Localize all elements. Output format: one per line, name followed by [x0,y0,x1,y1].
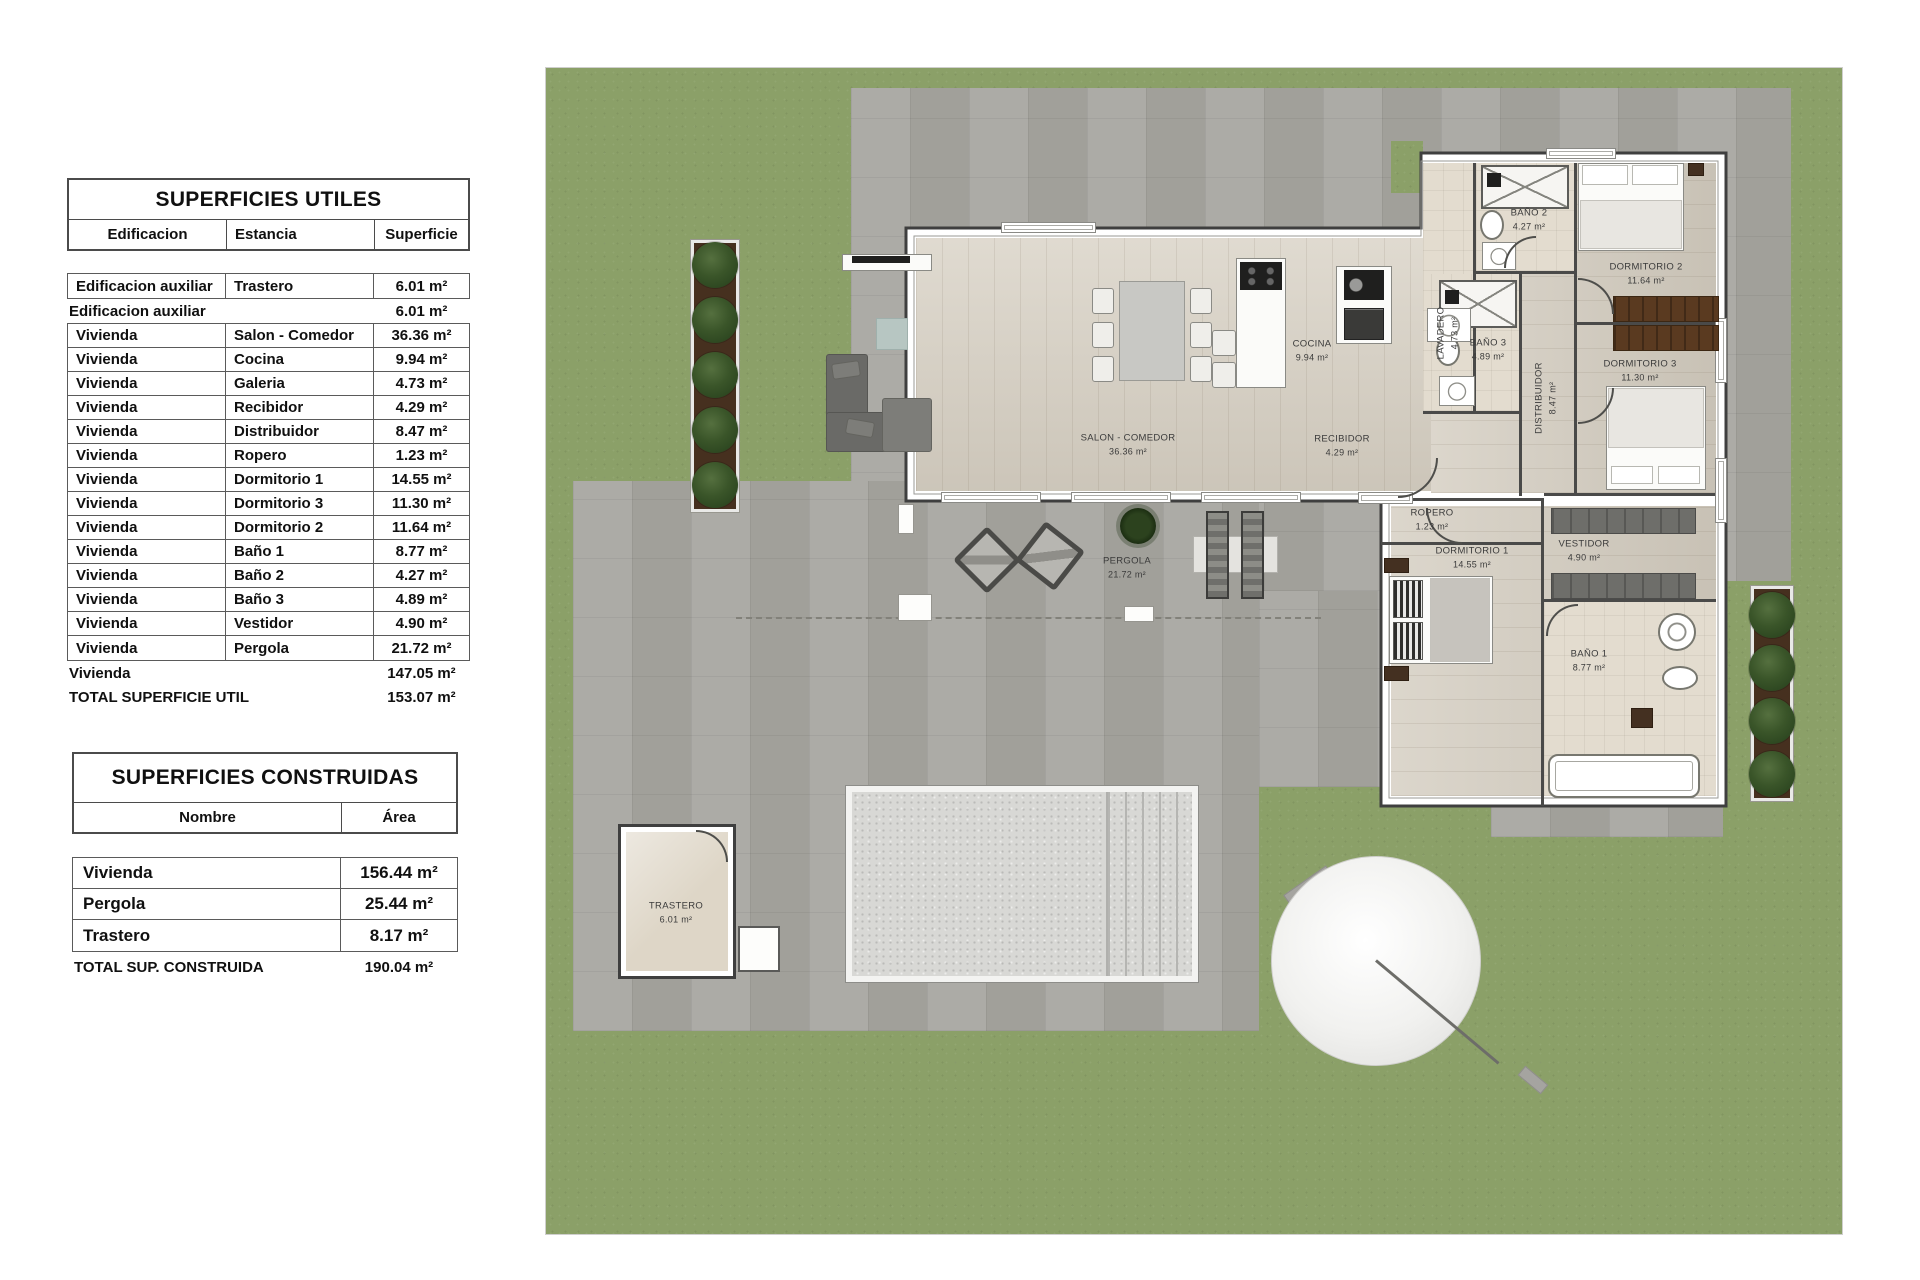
toilet [1662,666,1698,690]
pillow [1582,165,1628,185]
table-row: ViviendaBaño 24.27 m² [68,564,469,588]
wall [1544,493,1716,496]
cell-superficie: 6.01 m² [374,278,469,295]
construidas-header-box: SUPERFICIES CONSTRUIDAS Nombre Área [72,752,458,834]
room-label-bano3: BAÑO 34.89 m² [1470,338,1507,363]
wall [1476,271,1574,274]
cell-estancia: Trastero [226,274,374,298]
room-label-dormitorio2: DORMITORIO 211.64 m² [1609,262,1682,287]
subtotal-label: Edificacion auxiliar [67,303,373,320]
utiles-row-aux: Edificacion auxiliar Trastero 6.01 m² [67,273,470,299]
tv [852,256,910,263]
column-header-edificacion: Edificacion [69,220,227,249]
subtotal-label: Vivienda [67,665,373,682]
wall [1574,163,1577,496]
wall [1541,498,1544,806]
window [1071,492,1171,503]
table-row: ViviendaVestidor4.90 m² [68,612,469,636]
room-label-cocina: COCINA9.94 m² [1293,339,1332,364]
room-label-bano1: BAÑO 18.77 m² [1571,649,1608,674]
table-row: Pergola25.44 m² [73,889,457,920]
column-header-estancia: Estancia [227,220,375,249]
shower-head [1445,290,1459,304]
table-row: ViviendaGaleria4.73 m² [68,372,469,396]
dining-chair [1092,356,1114,382]
total-label: TOTAL SUPERFICIE UTIL [67,689,373,706]
table-row: ViviendaDormitorio 211.64 m² [68,516,469,540]
pillow [1393,580,1423,618]
construidas-total: TOTAL SUP. CONSTRUIDA 190.04 m² [72,952,458,982]
dining-chair [1092,288,1114,314]
table-row: ViviendaRopero1.23 m² [68,444,469,468]
utiles-rows: Edificacion auxiliar Trastero 6.01 m² Ed… [67,273,470,709]
subtotal-value: 6.01 m² [373,303,470,320]
table-row: Trastero8.17 m² [73,920,457,951]
dining-chair [1190,288,1212,314]
utiles-subtotal-aux: Edificacion auxiliar 6.01 m² [67,299,470,323]
duvet [1608,388,1704,448]
washbasin [1658,613,1696,651]
construidas-rows: Vivienda156.44 m² Pergola25.44 m² Traste… [72,857,458,982]
room-label-dormitorio3: DORMITORIO 311.30 m² [1603,359,1676,384]
nightstand [1688,163,1704,176]
wall [1423,411,1519,414]
table-row: ViviendaPergola21.72 m² [68,636,469,660]
room-label-bano2: BAÑO 24.27 m² [1511,208,1548,233]
superficies-utiles-table: SUPERFICIES UTILES Edificacion Estancia … [67,178,470,709]
cell-edificacion: Edificacion auxiliar [68,274,226,298]
dining-chair [1190,356,1212,382]
wardrobe [1551,573,1696,599]
dining-chair [1190,322,1212,348]
table-row: Vivienda156.44 m² [73,858,457,889]
duvet [1580,200,1682,249]
shower-head [1487,173,1501,187]
toilet [1480,210,1504,240]
dining-table [1119,281,1185,381]
cooktop [1240,262,1282,290]
total-value: 153.07 m² [373,689,470,706]
nightstand [1384,666,1409,681]
room-label-recibidor: RECIBIDOR4.29 m² [1314,434,1369,459]
table-row: ViviendaSalon - Comedor36.36 m² [68,324,469,348]
pillow [1611,466,1653,484]
site-plan: SALON - COMEDOR36.36 m² COCINA9.94 m² LA… [545,67,1843,1235]
table-row: ViviendaRecibidor4.29 m² [68,396,469,420]
room-label-pergola: PERGOLA21.72 m² [1103,556,1151,581]
sofa-chaise [882,398,932,452]
wall [1544,599,1716,602]
table-row: ViviendaBaño 18.77 m² [68,540,469,564]
room-label-trastero: TRASTERO6.01 m² [649,901,703,926]
total-label: TOTAL SUP. CONSTRUIDA [72,959,340,976]
shower [1481,165,1569,209]
window [1201,492,1301,503]
wardrobe [1551,508,1696,534]
column-header-nombre: Nombre [74,803,342,832]
bar-stool [1212,330,1236,356]
house-interior [546,68,1842,1234]
table-row: ViviendaDormitorio 311.30 m² [68,492,469,516]
room-label-dormitorio1: DORMITORIO 114.55 m² [1435,546,1508,571]
table-row: Edificacion auxiliar Trastero 6.01 m² [68,274,469,298]
pillow [1393,622,1423,660]
column-header-superficie: Superficie [375,220,468,249]
page: SUPERFICIES UTILES Edificacion Estancia … [0,0,1920,1280]
pillow [1632,165,1678,185]
utiles-title: SUPERFICIES UTILES [69,180,468,219]
window [941,492,1041,503]
room-label-ropero: ROPERO1.23 m² [1411,508,1454,533]
rug [876,318,908,350]
construidas-title: SUPERFICIES CONSTRUIDAS [74,754,456,802]
table-row: ViviendaDormitorio 114.55 m² [68,468,469,492]
room-label-lavadero: LAVADERO4.73 m² [1436,307,1461,360]
window [1715,458,1727,523]
pillow [1658,466,1700,484]
total-value: 190.04 m² [340,959,458,976]
fridge [1344,308,1384,340]
utiles-subtotal-vivienda: Vivienda 147.05 m² [67,661,470,685]
wardrobe [1613,325,1719,351]
table-row: ViviendaBaño 34.89 m² [68,588,469,612]
table-row: ViviendaCocina9.94 m² [68,348,469,372]
duvet [1430,578,1490,662]
room-label-vestidor: VESTIDOR4.90 m² [1559,539,1610,564]
subtotal-value: 147.05 m² [373,665,470,682]
bar-stool [1212,362,1236,388]
room-label-salon: SALON - COMEDOR36.36 m² [1081,433,1176,458]
room-label-distribuidor: DISTRIBUIDOR8.47 m² [1534,362,1559,434]
utiles-total: TOTAL SUPERFICIE UTIL 153.07 m² [67,685,470,709]
wall [1519,274,1522,496]
dining-chair [1092,322,1114,348]
bathtub [1548,754,1700,798]
superficies-construidas-table: SUPERFICIES CONSTRUIDAS Nombre Área Vivi… [72,752,458,982]
table-row: ViviendaDistribuidor8.47 m² [68,420,469,444]
cabinet [1631,708,1653,728]
utiles-rows-vivienda: ViviendaSalon - Comedor36.36 m² Vivienda… [67,323,470,661]
washbasin [1439,376,1475,406]
wardrobe [1613,296,1719,322]
construidas-column-headers: Nombre Área [74,802,456,832]
window [1001,222,1096,233]
nightstand [1384,558,1409,573]
column-header-area: Área [342,803,456,832]
utiles-header-box: SUPERFICIES UTILES Edificacion Estancia … [67,178,470,251]
window [1546,148,1616,159]
kitchen-sink [1344,270,1384,300]
utiles-column-headers: Edificacion Estancia Superficie [69,219,468,249]
